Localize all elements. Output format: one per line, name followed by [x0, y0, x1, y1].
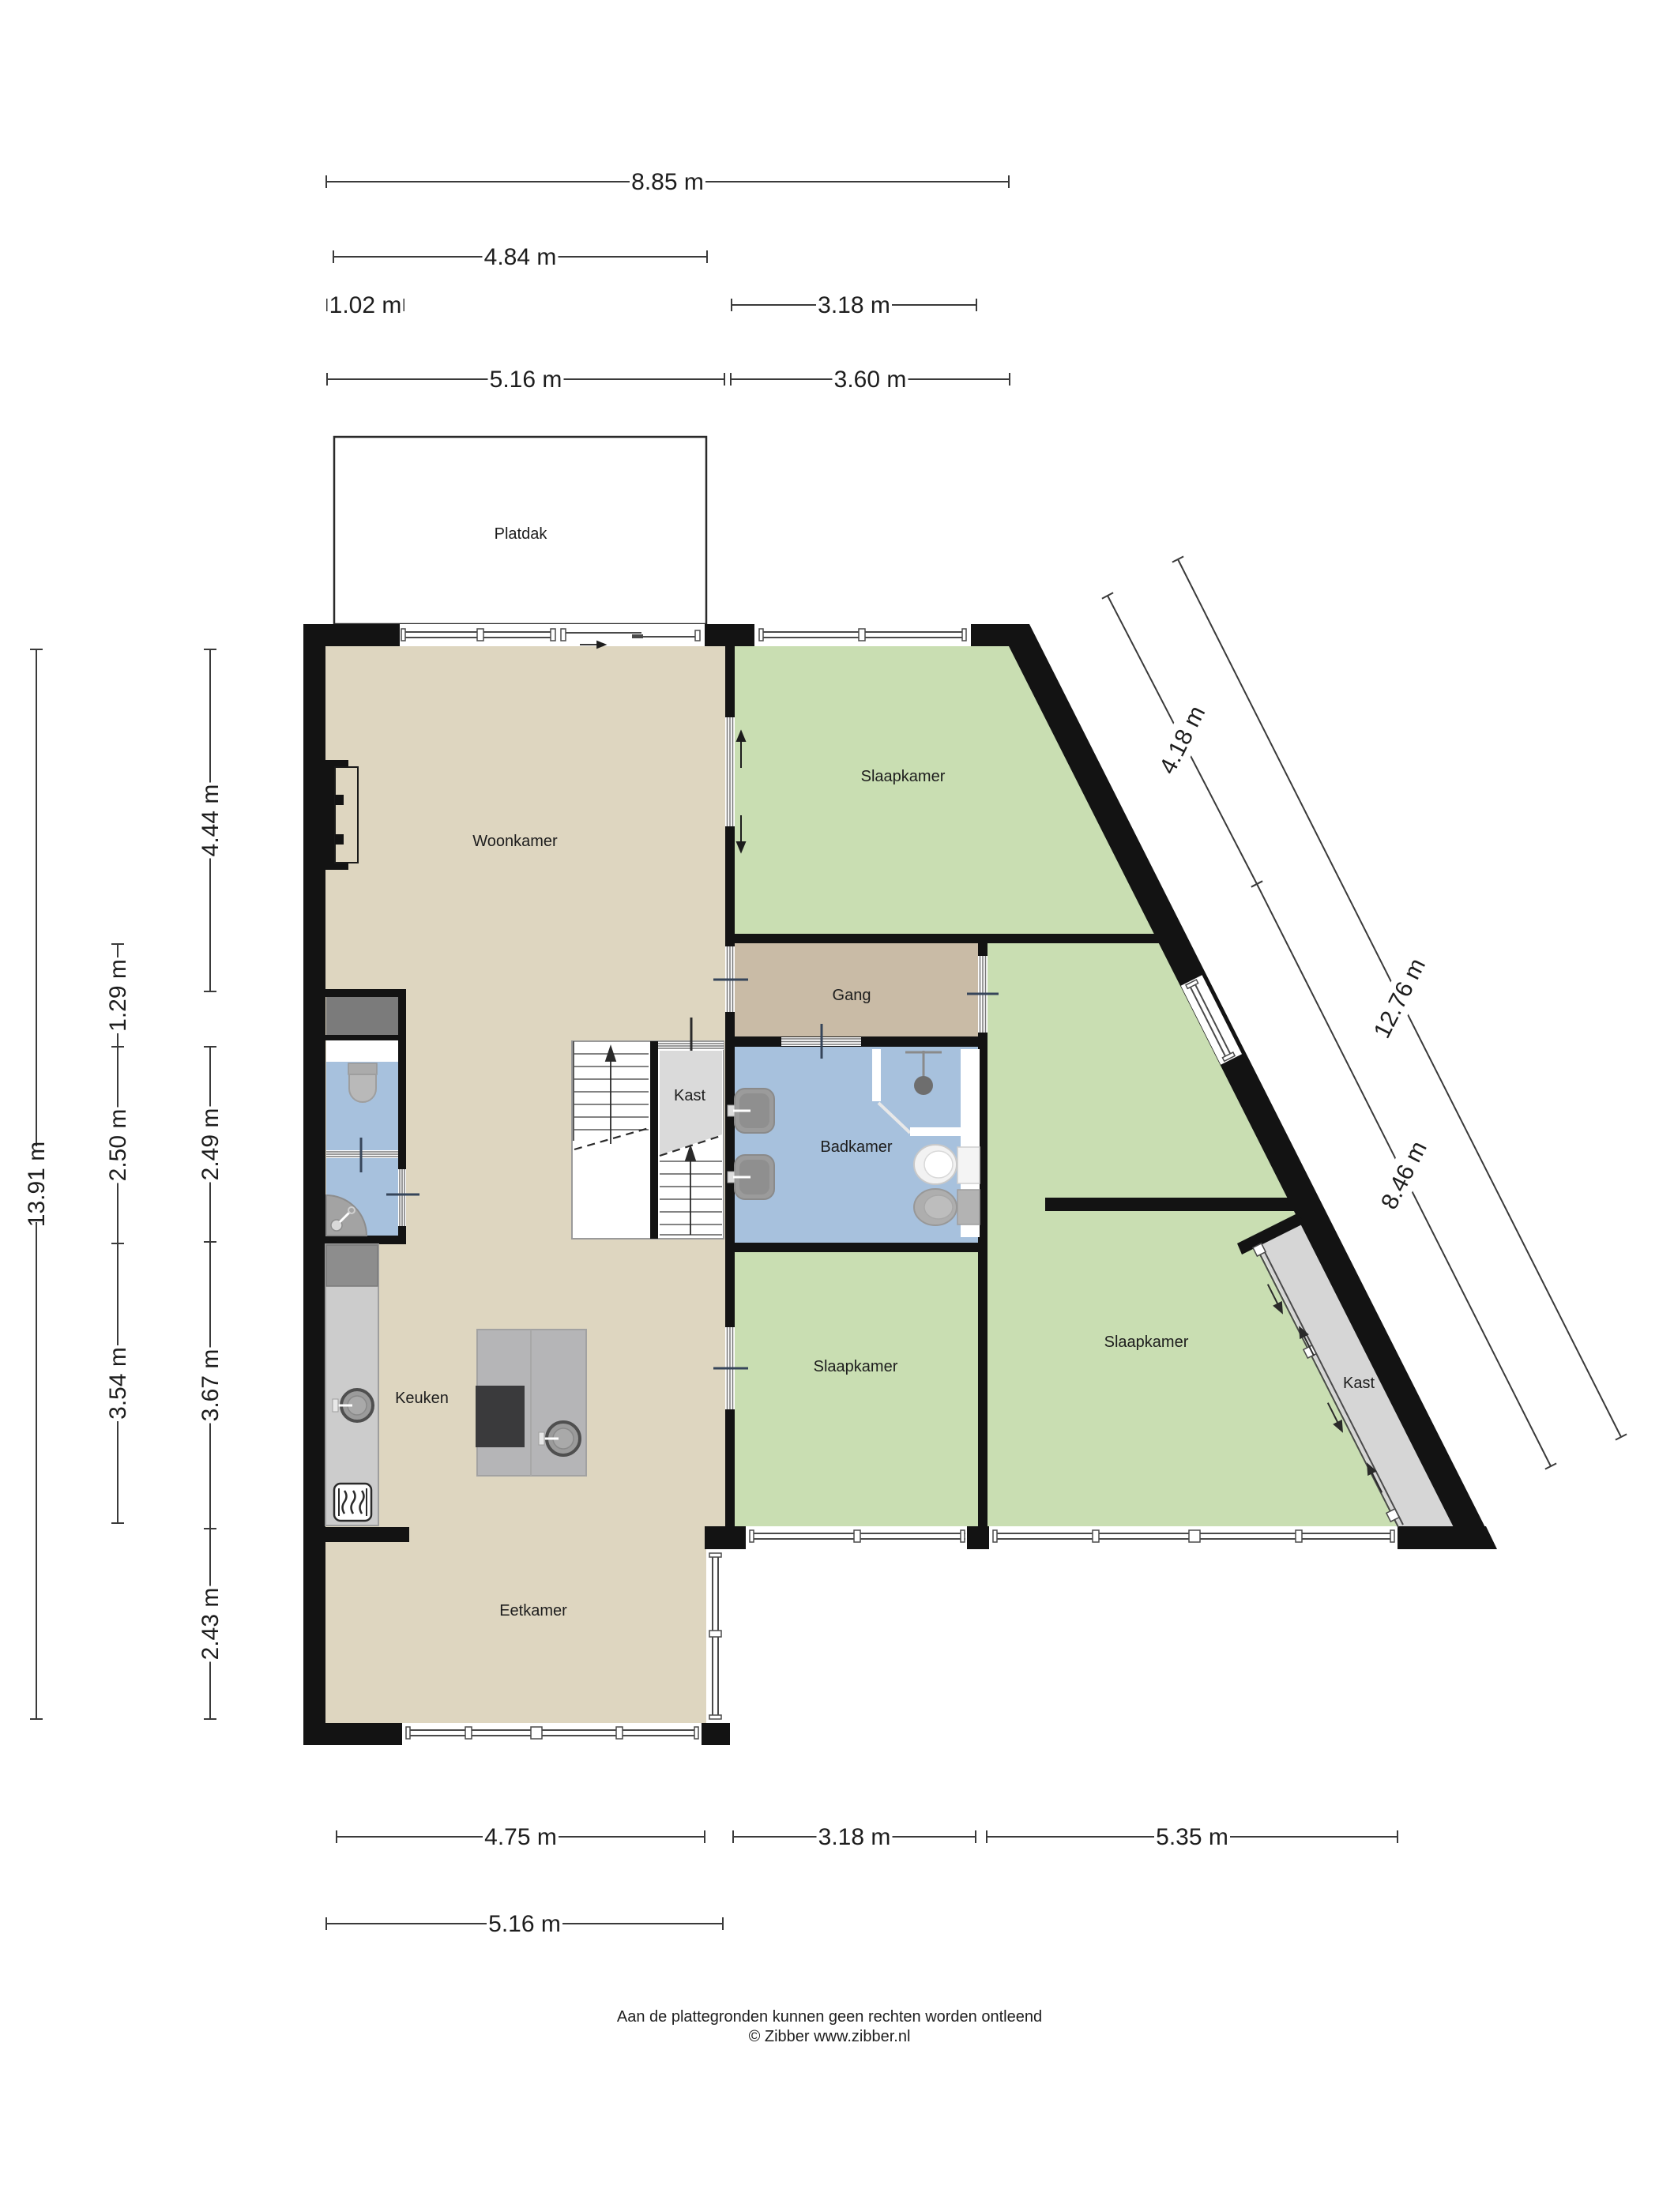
svg-text:4.44 m: 4.44 m	[197, 784, 224, 857]
svg-text:1.29 m: 1.29 m	[105, 959, 131, 1032]
svg-text:3.54 m: 3.54 m	[105, 1347, 131, 1420]
svg-text:Platdak: Platdak	[495, 525, 548, 543]
svg-text:2.50 m: 2.50 m	[105, 1109, 131, 1182]
svg-text:5.16 m: 5.16 m	[490, 367, 562, 393]
svg-text:2.43 m: 2.43 m	[197, 1588, 224, 1661]
svg-text:4.75 m: 4.75 m	[484, 1824, 557, 1850]
svg-text:3.18 m: 3.18 m	[818, 1824, 891, 1850]
svg-text:Slaapkamer: Slaapkamer	[861, 768, 946, 785]
svg-text:Slaapkamer: Slaapkamer	[814, 1358, 898, 1375]
svg-text:Keuken: Keuken	[395, 1390, 449, 1407]
svg-text:Badkamer: Badkamer	[820, 1138, 892, 1156]
svg-text:© Zibber www.zibber.nl: © Zibber www.zibber.nl	[749, 2028, 911, 2045]
svg-text:Aan de plattegronden kunnen ge: Aan de plattegronden kunnen geen rechten…	[617, 2008, 1042, 2026]
svg-text:3.67 m: 3.67 m	[197, 1349, 224, 1422]
svg-text:Eetkamer: Eetkamer	[499, 1602, 567, 1619]
svg-text:5.35 m: 5.35 m	[1156, 1824, 1228, 1850]
svg-text:5.16 m: 5.16 m	[488, 1911, 561, 1937]
svg-text:Slaapkamer: Slaapkamer	[1104, 1334, 1189, 1351]
svg-text:3.18 m: 3.18 m	[818, 292, 890, 318]
svg-text:13.91 m: 13.91 m	[24, 1142, 50, 1227]
svg-text:2.49 m: 2.49 m	[197, 1108, 224, 1181]
svg-text:8.85 m: 8.85 m	[631, 169, 704, 195]
svg-text:Woonkamer: Woonkamer	[472, 833, 558, 850]
svg-text:Kast: Kast	[1343, 1375, 1375, 1392]
svg-text:Kast: Kast	[674, 1087, 705, 1104]
svg-text:1.02 m: 1.02 m	[329, 292, 402, 318]
svg-text:4.84 m: 4.84 m	[484, 244, 557, 270]
svg-text:3.60 m: 3.60 m	[834, 367, 907, 393]
svg-text:Gang: Gang	[833, 987, 871, 1004]
